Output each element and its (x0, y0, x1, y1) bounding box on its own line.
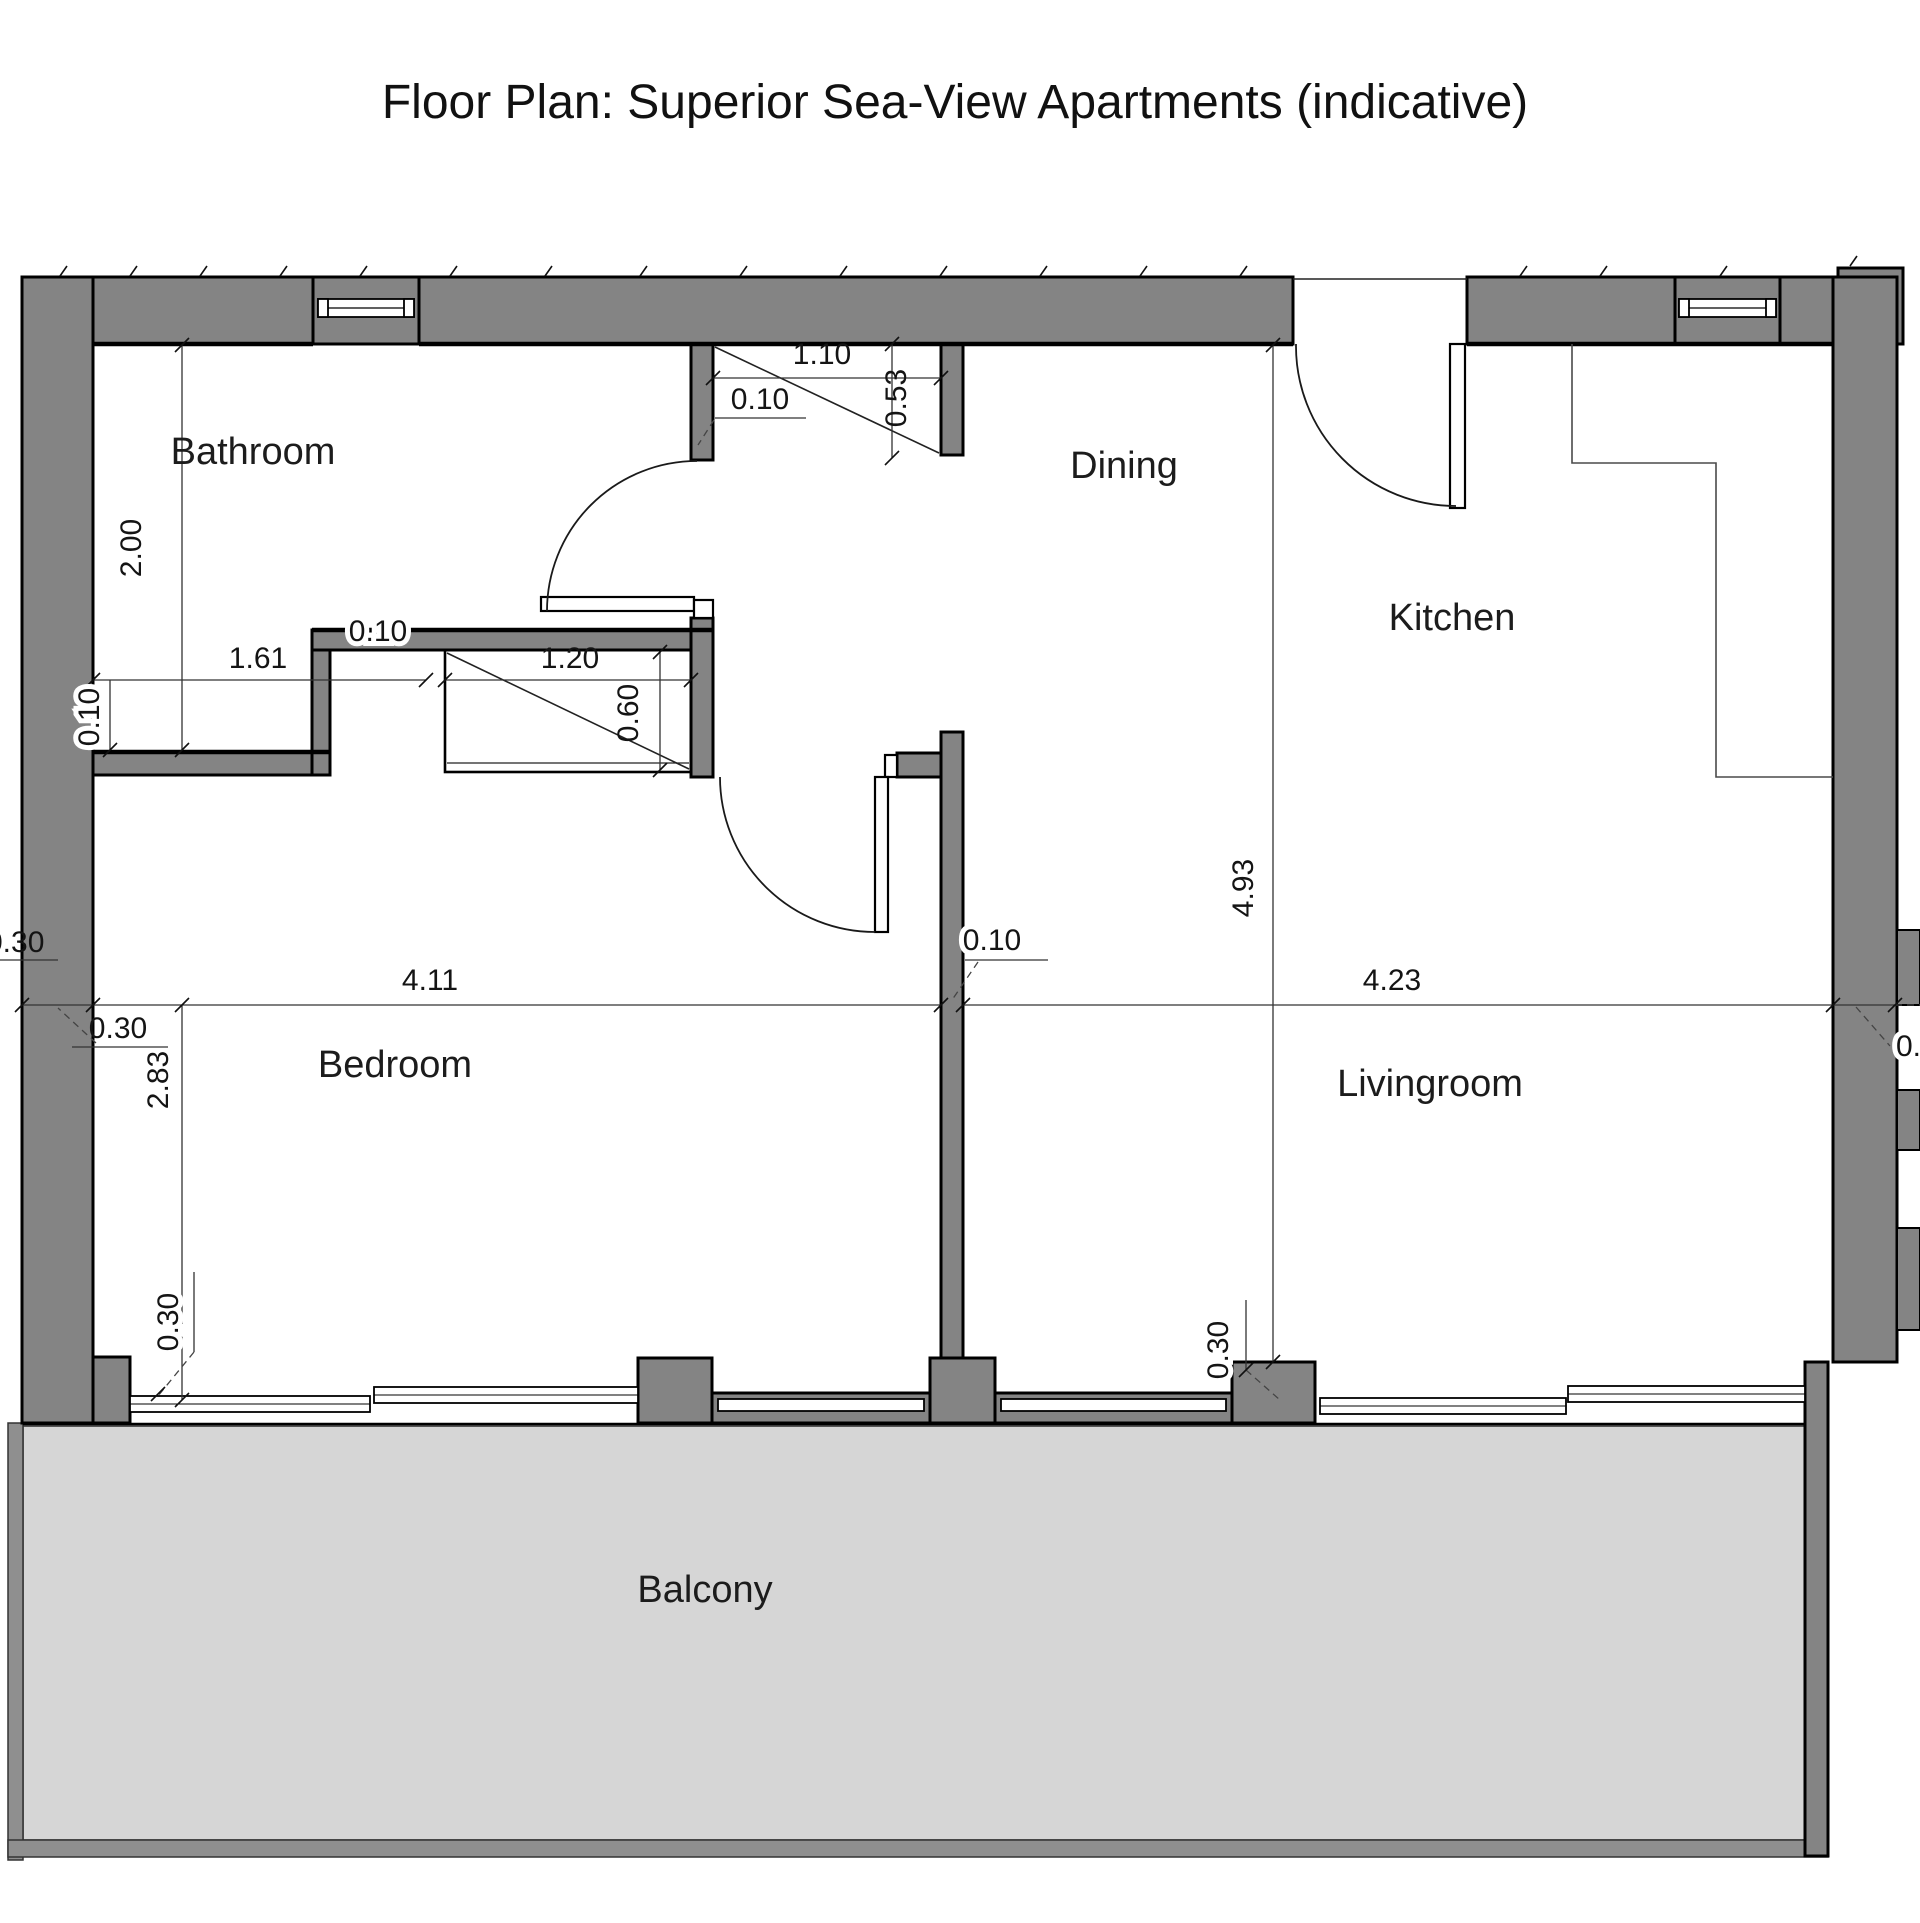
dim-bath-width: 1.61 (229, 642, 287, 675)
hatch-ticks (60, 256, 1857, 276)
dim-closet1-wall: 0.10 (731, 383, 789, 416)
dim-bedroom-height: 2.83 (142, 1051, 175, 1109)
window-bathroom-post-left (318, 299, 328, 317)
wall-top-right-a (1467, 277, 1675, 344)
dim-bath-wall: 0.10 (73, 688, 106, 746)
dim-inner-wall: 0.10 (963, 924, 1021, 957)
kitchen-counter-outline (1572, 344, 1833, 777)
dim-leaders (58, 420, 1920, 1400)
dim-bath-height: 2.00 (115, 519, 148, 577)
dim-closet1-depth: 0.53 (880, 369, 913, 427)
wall-closet1-right (941, 344, 963, 455)
page-title: Floor Plan: Superior Sea-View Apartments… (382, 76, 1528, 129)
wall-closet1-left (691, 344, 713, 460)
room-label-dining: Dining (1070, 445, 1178, 487)
dim-bedroom-width: 4.11 (402, 964, 458, 997)
dim-niche-wall: 0.10 (349, 615, 407, 648)
doors (541, 279, 1467, 932)
window-kitchen-post-right (1766, 299, 1776, 317)
wall-right-stub-3 (1897, 1228, 1920, 1330)
room-label-bedroom: Bedroom (318, 1044, 472, 1086)
dim-closet2-depth: 0.60 (612, 684, 645, 742)
floor-plan-drawing: Floor Plan: Superior Sea-View Apartments… (0, 0, 1920, 1923)
balcony-rail-left (8, 1423, 23, 1860)
wall-balcony-right (1805, 1362, 1828, 1856)
wall-right-stub-2 (1897, 1090, 1920, 1150)
dim-closet1-width: 1.10 (793, 338, 851, 371)
wall-bedroom-door-stub (897, 753, 941, 777)
floor-plan-page: Floor Plan: Superior Sea-View Apartments… (0, 0, 1920, 1923)
window-kitchen-post-left (1679, 299, 1689, 317)
dim-closet2-width: 1.20 (541, 642, 599, 675)
wall-right-stub-1 (1897, 930, 1920, 1005)
room-label-bathroom: Bathroom (171, 431, 336, 473)
dim-living-height: 4.93 (1227, 859, 1260, 917)
room-label-kitchen: Kitchen (1389, 597, 1516, 639)
wall-left (22, 277, 93, 1423)
dim-pier: 0.30 (1202, 1321, 1235, 1379)
room-label-balcony: Balcony (637, 1569, 772, 1611)
bedroom-door-hinge (885, 755, 897, 777)
pier-1 (638, 1358, 712, 1423)
dim-underlines (0, 418, 1048, 1047)
wall-bedroom-living (941, 732, 963, 1423)
room-labels: Bathroom Dining Kitchen Bedroom Livingro… (171, 431, 1523, 1105)
balcony: Balcony (8, 1423, 1828, 1860)
bedroom-door-leaf (875, 777, 888, 932)
wall-closet2-right (691, 618, 713, 777)
balcony-rail-bottom (8, 1840, 1828, 1857)
dim-right-edge-clipped: 0.10 (1896, 1030, 1920, 1063)
wall-top-middle (419, 277, 1293, 344)
window-bathroom-post-right (404, 299, 414, 317)
window-band-bedroom-glazing (718, 1399, 924, 1411)
balcony-floor (23, 1426, 1805, 1840)
wall-bathroom-south (93, 752, 330, 775)
bathroom-door-leaf (541, 597, 694, 611)
bathroom-door-arc (547, 461, 697, 611)
dim-left-edge-clipped: 0.30 (0, 926, 44, 959)
bedroom-door-arc (720, 777, 875, 932)
wall-left-bottom-block (93, 1357, 130, 1423)
pier-2 (930, 1358, 995, 1423)
entrance-door-arc (1296, 344, 1456, 506)
dim-living-width: 4.23 (1363, 964, 1421, 997)
bathroom-door-hinge (694, 600, 713, 618)
wall-right (1833, 277, 1897, 1362)
windows (130, 299, 1805, 1414)
room-label-livingroom: Livingroom (1337, 1063, 1523, 1105)
dim-left-wall: 0.30 (89, 1012, 147, 1045)
window-band-living-glazing (1001, 1399, 1226, 1411)
entrance-door-leaf (1450, 344, 1465, 508)
dim-window-offset: 0.30 (152, 1293, 185, 1351)
